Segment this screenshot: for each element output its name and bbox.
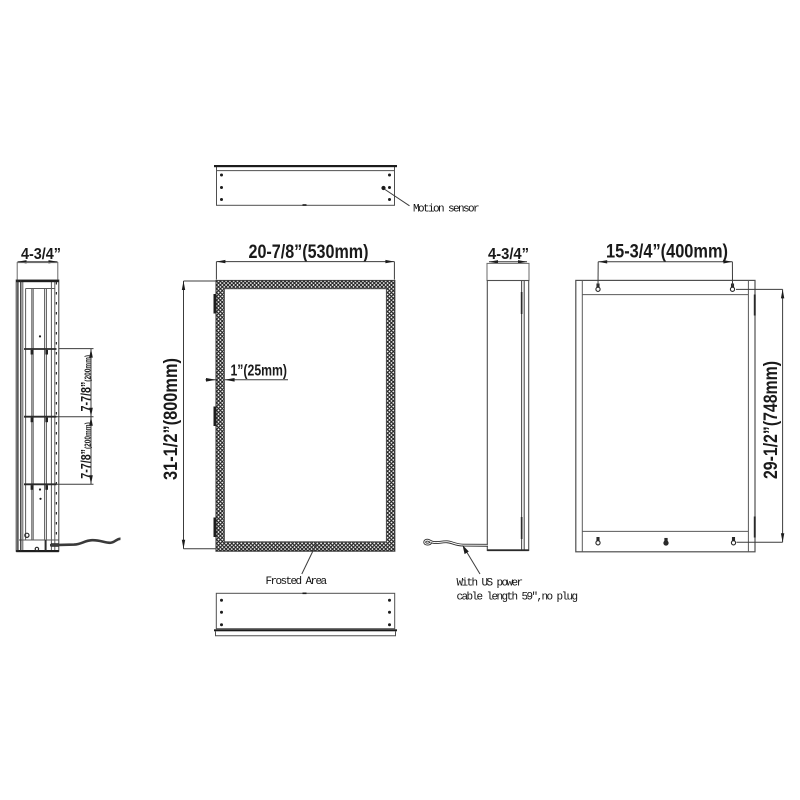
- svg-text:4-3/4”: 4-3/4”: [21, 246, 61, 263]
- svg-text:15-3/4”(400mm): 15-3/4”(400mm): [606, 242, 728, 263]
- svg-text:29-1/2”(748mm): 29-1/2”(748mm): [761, 361, 782, 479]
- svg-text:1”(25mm): 1”(25mm): [231, 363, 288, 380]
- svg-text:31-1/2”(800mm): 31-1/2”(800mm): [161, 358, 182, 480]
- svg-text:Motion sensor: Motion sensor: [413, 204, 479, 216]
- svg-text:With US power: With US power: [457, 578, 523, 590]
- svg-text:20-7/8”(530mm): 20-7/8”(530mm): [249, 242, 369, 263]
- svg-text:Frosted Area: Frosted Area: [266, 576, 328, 588]
- svg-text:4-3/4”: 4-3/4”: [488, 246, 529, 263]
- svg-text:cable length 59″,no plug: cable length 59″,no plug: [457, 592, 578, 604]
